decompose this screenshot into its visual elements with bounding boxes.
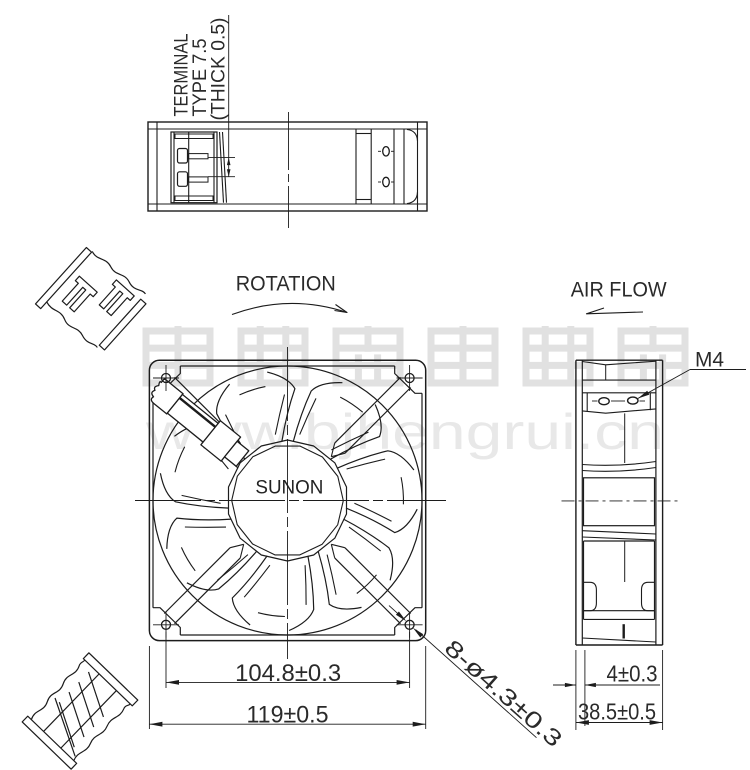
svg-text:M4: M4 <box>695 349 724 372</box>
svg-text:4±0.3: 4±0.3 <box>607 661 658 687</box>
svg-text:ROTATION: ROTATION <box>236 273 336 296</box>
svg-text:(THICK 0.5): (THICK 0.5) <box>208 18 229 121</box>
svg-text:119±0.5: 119±0.5 <box>247 702 329 729</box>
svg-text:AIR FLOW: AIR FLOW <box>571 279 667 302</box>
svg-text:38.5±0.5: 38.5±0.5 <box>578 699 656 725</box>
svg-text:SUNON: SUNON <box>255 477 323 499</box>
svg-text:104.8±0.3: 104.8±0.3 <box>235 660 341 687</box>
